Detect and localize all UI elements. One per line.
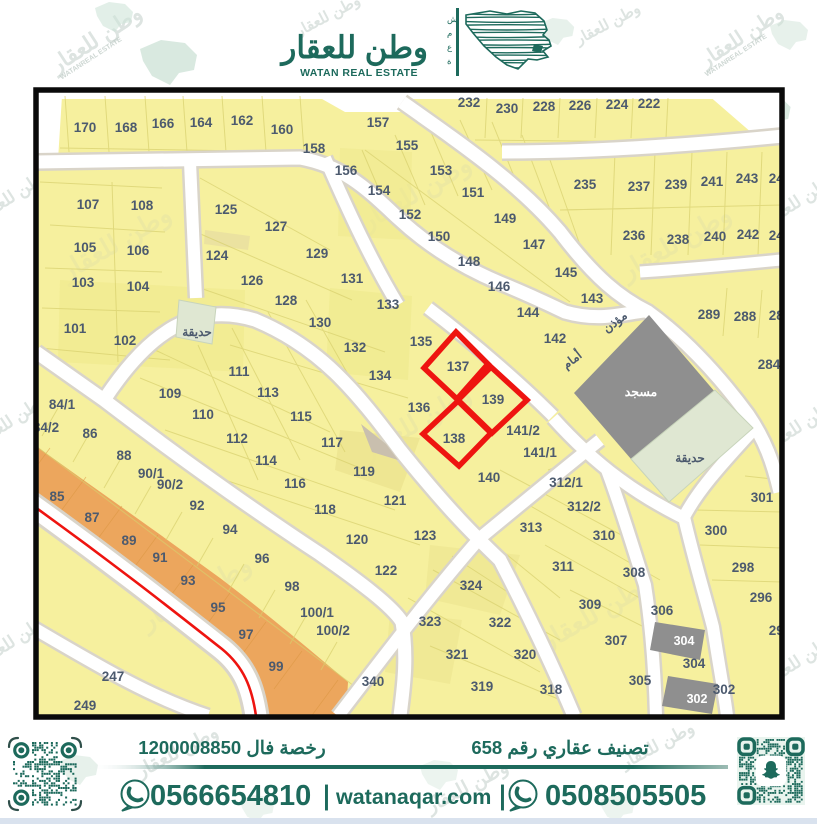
svg-text:87: 87	[84, 510, 99, 525]
svg-text:تصنيف عقاري رقم 658: تصنيف عقاري رقم 658	[471, 737, 648, 760]
svg-text:230: 230	[496, 101, 519, 116]
svg-text:116: 116	[284, 476, 306, 491]
svg-text:119: 119	[353, 464, 375, 479]
svg-text:148: 148	[458, 254, 481, 269]
svg-text:127: 127	[265, 219, 288, 234]
svg-text:108: 108	[131, 198, 154, 213]
svg-text:0566654810: 0566654810	[150, 780, 311, 812]
svg-text:302: 302	[713, 682, 736, 697]
svg-text:مسجد: مسجد	[625, 385, 658, 399]
svg-text:305: 305	[629, 673, 652, 688]
svg-text:146: 146	[488, 279, 511, 294]
svg-text:112: 112	[226, 431, 248, 446]
svg-text:121: 121	[384, 493, 407, 508]
svg-text:97: 97	[238, 627, 253, 642]
svg-text:247: 247	[102, 669, 125, 684]
svg-text:288: 288	[734, 309, 757, 324]
svg-text:241: 241	[701, 174, 724, 189]
svg-text:311: 311	[552, 559, 574, 574]
svg-text:313: 313	[520, 520, 543, 535]
svg-text:302: 302	[687, 692, 708, 706]
svg-text:94: 94	[222, 522, 238, 537]
svg-text:301: 301	[751, 490, 774, 505]
svg-text:144: 144	[517, 305, 540, 320]
svg-text:236: 236	[623, 228, 646, 243]
svg-text:85: 85	[49, 489, 65, 504]
svg-text:150: 150	[428, 229, 451, 244]
svg-text:122: 122	[375, 563, 398, 578]
svg-text:100/2: 100/2	[316, 623, 350, 638]
svg-text:حديقة: حديقة	[675, 451, 705, 465]
svg-text:224: 224	[606, 97, 629, 112]
svg-text:WATAN REAL ESTATE: WATAN REAL ESTATE	[300, 67, 418, 79]
svg-text:وطن للعقار: وطن للعقار	[279, 30, 428, 67]
svg-text:98: 98	[284, 579, 300, 594]
svg-text:239: 239	[665, 177, 688, 192]
svg-text:157: 157	[367, 115, 390, 130]
svg-text:249: 249	[74, 698, 97, 713]
svg-text:96: 96	[254, 551, 270, 566]
svg-text:153: 153	[430, 163, 453, 178]
svg-text:124: 124	[206, 248, 229, 263]
svg-text:86: 86	[82, 426, 98, 441]
svg-text:133: 133	[377, 297, 400, 312]
svg-text:103: 103	[72, 275, 95, 290]
svg-text:91: 91	[152, 550, 168, 565]
svg-text:155: 155	[396, 138, 419, 153]
svg-text:222: 222	[638, 96, 661, 111]
svg-text:101: 101	[64, 321, 87, 336]
svg-text:235: 235	[574, 177, 597, 192]
svg-text:321: 321	[446, 647, 469, 662]
svg-text:134: 134	[369, 368, 392, 383]
svg-text:93: 93	[180, 573, 196, 588]
svg-text:110: 110	[192, 407, 214, 422]
svg-text:137: 137	[447, 359, 470, 374]
svg-text:312/2: 312/2	[567, 499, 601, 514]
svg-text:105: 105	[74, 240, 97, 255]
svg-text:324: 324	[460, 578, 483, 593]
svg-text:304: 304	[683, 656, 706, 671]
svg-text:115: 115	[290, 409, 312, 424]
svg-text:284: 284	[758, 357, 781, 372]
svg-text:323: 323	[419, 614, 442, 629]
svg-text:240: 240	[704, 229, 727, 244]
svg-text:309: 309	[579, 597, 602, 612]
svg-text:125: 125	[215, 202, 238, 217]
svg-text:92: 92	[189, 498, 204, 513]
svg-text:111: 111	[228, 364, 250, 379]
svg-text:318: 318	[540, 682, 563, 697]
svg-text:1200008850 رخصة فال: 1200008850 رخصة فال	[138, 737, 325, 759]
svg-text:113: 113	[257, 385, 279, 400]
svg-text:126: 126	[241, 273, 264, 288]
svg-text:162: 162	[231, 113, 254, 128]
svg-text:310: 310	[593, 528, 616, 543]
svg-text:84/1: 84/1	[49, 397, 76, 412]
svg-text:118: 118	[314, 502, 336, 517]
svg-text:296: 296	[750, 590, 773, 605]
svg-text:319: 319	[471, 679, 494, 694]
svg-text:243: 243	[736, 171, 759, 186]
svg-text:147: 147	[523, 237, 546, 252]
svg-text:322: 322	[489, 615, 512, 630]
svg-text:88: 88	[116, 448, 132, 463]
svg-text:90/2: 90/2	[157, 477, 183, 492]
svg-text:106: 106	[127, 243, 150, 258]
svg-text:حديقة: حديقة	[182, 325, 212, 339]
svg-text:237: 237	[628, 179, 651, 194]
svg-text:141/2: 141/2	[506, 423, 540, 438]
svg-text:320: 320	[514, 647, 537, 662]
svg-text:168: 168	[115, 120, 138, 135]
svg-text:152: 152	[399, 207, 422, 222]
svg-text:300: 300	[705, 523, 728, 538]
svg-text:228: 228	[533, 99, 556, 114]
svg-text:289: 289	[698, 307, 721, 322]
svg-text:ة: ة	[447, 56, 452, 66]
svg-text:0508505505: 0508505505	[545, 780, 706, 812]
svg-text:139: 139	[482, 392, 505, 407]
svg-text:132: 132	[344, 340, 367, 355]
svg-text:135: 135	[410, 334, 433, 349]
svg-text:164: 164	[190, 115, 213, 130]
svg-text:136: 136	[408, 400, 431, 415]
svg-text:340: 340	[362, 674, 385, 689]
svg-text:149: 149	[494, 211, 517, 226]
svg-text:99: 99	[268, 659, 283, 674]
svg-text:114: 114	[255, 453, 277, 468]
svg-text:308: 308	[623, 565, 646, 580]
svg-text:156: 156	[335, 163, 358, 178]
svg-text:226: 226	[569, 98, 592, 113]
svg-text:154: 154	[368, 183, 391, 198]
svg-text:312/1: 312/1	[549, 475, 583, 490]
svg-text:89: 89	[121, 533, 136, 548]
svg-text:145: 145	[555, 265, 578, 280]
svg-text:109: 109	[159, 386, 182, 401]
svg-text:128: 128	[275, 293, 298, 308]
svg-text:170: 170	[74, 120, 97, 135]
svg-text:107: 107	[77, 197, 100, 212]
svg-text:298: 298	[732, 560, 755, 575]
svg-text:م: م	[447, 28, 452, 39]
svg-text:151: 151	[462, 185, 485, 200]
svg-text:140: 140	[478, 470, 501, 485]
svg-text:232: 232	[458, 95, 481, 110]
svg-text:❘: ❘	[316, 782, 337, 811]
svg-text:242: 242	[737, 227, 760, 242]
svg-text:160: 160	[271, 122, 294, 137]
svg-text:138: 138	[443, 431, 466, 446]
svg-text:100/1: 100/1	[300, 605, 334, 620]
svg-text:143: 143	[581, 291, 604, 306]
svg-text:238: 238	[667, 232, 690, 247]
svg-text:95: 95	[210, 600, 226, 615]
svg-text:141/1: 141/1	[523, 445, 557, 460]
svg-text:104: 104	[127, 279, 150, 294]
svg-text:117: 117	[321, 435, 343, 450]
svg-text:120: 120	[346, 532, 369, 547]
svg-text:131: 131	[341, 271, 364, 286]
svg-text:130: 130	[309, 315, 332, 330]
svg-text:307: 307	[605, 633, 628, 648]
svg-text:304: 304	[674, 634, 695, 648]
svg-text:102: 102	[114, 333, 137, 348]
svg-text:129: 129	[306, 246, 329, 261]
svg-text:306: 306	[651, 603, 674, 618]
svg-text:166: 166	[152, 116, 175, 131]
svg-text:watanaqar.com: watanaqar.com	[335, 785, 491, 809]
svg-text:123: 123	[414, 528, 437, 543]
svg-text:158: 158	[303, 141, 326, 156]
svg-text:142: 142	[544, 331, 567, 346]
